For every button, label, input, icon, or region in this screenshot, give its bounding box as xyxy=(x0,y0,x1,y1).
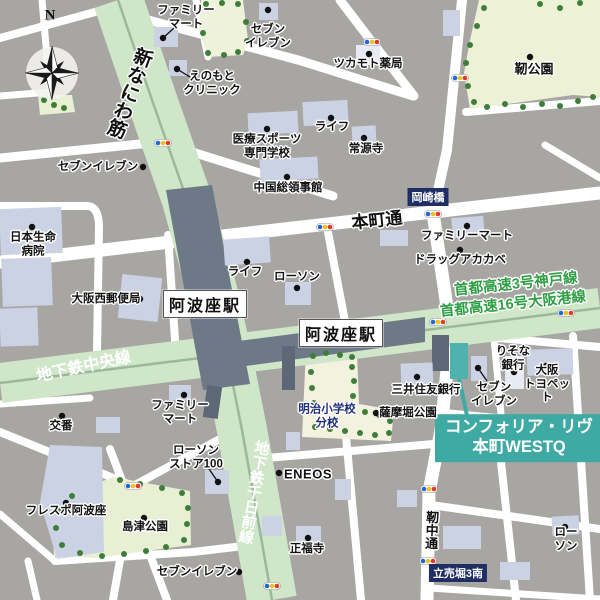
poi-label-seveneleven-top: セブン イレブン xyxy=(245,23,291,50)
location-map: N 新なにわ筋 地下鉄中央線 地下鉄千日前線 本町通 靭中通 首都高速3号神戸線… xyxy=(0,0,600,600)
poi-label-lawson-center: ローソン xyxy=(274,271,320,285)
poi-label-eneos: ENEOS xyxy=(284,466,332,481)
sign-okazakibashi: 岡崎橋 xyxy=(408,188,449,206)
poi-label-utsubo-park: 靭公園 xyxy=(514,61,553,76)
poi-label-seveneleven-left: セブンイレブン xyxy=(58,161,139,175)
poi-label-familymart-bottom: ファミリー マート xyxy=(151,399,209,426)
road-label-utsubo-naka: 靭中通 xyxy=(423,510,440,550)
poi-label-seveneleven-center: セブン イレブン xyxy=(471,381,517,408)
poi-label-tsukamoto-pharmacy: ツカモト薬局 xyxy=(334,58,403,72)
station-label-awaza-east: 阿波座駅 xyxy=(299,319,383,347)
poi-label-seveneleven-bottom: セブンイレブン xyxy=(157,566,238,580)
poi-label-life-center: ライフ xyxy=(228,266,263,280)
poi-label-enomoto-clinic: えのもと クリニック xyxy=(183,70,241,97)
station-exit xyxy=(282,346,295,390)
poi-label-smbc-bank: 三井住友銀行 xyxy=(392,384,461,398)
station-label-awaza-west: 阿波座駅 xyxy=(163,290,247,318)
poi-label-iryo-sports-school: 医療スポーツ 専門学校 xyxy=(233,133,302,160)
poi-label-osaka-toyopet: 大阪 トヨペット xyxy=(521,365,574,406)
poi-label-nippon-life-hospital: 日本生命 病院 xyxy=(10,231,56,258)
sign-itachibori-3-minami: 立売堀3南 xyxy=(429,564,487,582)
utsubo-park-area xyxy=(464,0,600,109)
poi-label-drug-akakabe: ドラッグアカカベ xyxy=(414,254,506,268)
poi-label-satsumabori-park: 薩摩堀公園 xyxy=(379,407,437,421)
property-building xyxy=(450,343,468,379)
poi-label-lawson-store100: ローソン ストア100 xyxy=(169,444,223,471)
property-name-line2: 本町WESTQ xyxy=(445,438,593,458)
poi-label-shofukuji: 正福寺 xyxy=(290,543,325,557)
poi-label-koban: 交番 xyxy=(50,420,73,434)
poi-label-jogenji: 常源寺 xyxy=(349,143,384,157)
poi-label-shimazu-park: 島津公園 xyxy=(122,521,168,535)
compass-north-label: N xyxy=(45,8,56,25)
poi-label-frespo-awaza: フレスポ阿波座 xyxy=(26,505,107,519)
poi-label-life-upper: ライフ xyxy=(315,121,350,135)
station-exit xyxy=(432,335,449,371)
poi-label-familymart-top: ファミリー マート xyxy=(157,4,215,31)
poi-label-china-consulate: 中国総領事館 xyxy=(254,182,323,196)
poi-label-osaka-nishi-post: 大阪西郵便局 xyxy=(72,293,141,307)
poi-label-meiji-school-branch: 明治小学校 分校 xyxy=(298,403,356,430)
poi-label-familymart-honmachi: ファミリーマート xyxy=(421,230,513,244)
property-name-banner: コンフォリア・リヴ 本町WESTQ xyxy=(435,414,600,462)
property-name-line1: コンフォリア・リヴ xyxy=(445,418,593,438)
poi-label-lawson-bottom-right: ローソン xyxy=(549,526,583,553)
